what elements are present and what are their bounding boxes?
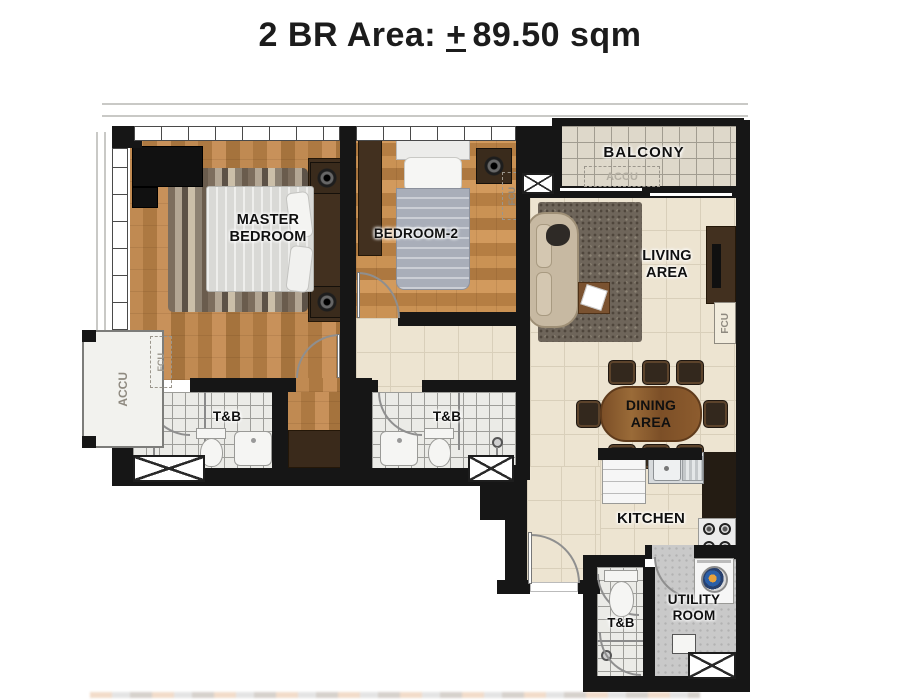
wall — [398, 312, 516, 326]
sink-faucet — [397, 438, 402, 443]
cropped-edge-artifact — [90, 692, 700, 698]
dining-chair — [642, 360, 670, 385]
master-nightstand-lamp — [310, 162, 344, 194]
bedroom2-pillow — [404, 157, 462, 192]
kitchen-counter — [702, 452, 736, 518]
utility-niche — [672, 634, 696, 654]
bedroom2-label: BEDROOM-2 — [360, 226, 472, 242]
dining-chair — [676, 360, 704, 385]
corridor-wardrobe — [288, 430, 342, 468]
slab-line — [104, 132, 106, 338]
fcu-master-box: FCU — [150, 336, 172, 388]
fcu-master-label: FCU — [156, 353, 166, 372]
wall — [82, 436, 96, 448]
slab-line — [102, 115, 748, 117]
sink-faucet — [251, 438, 256, 443]
wall — [497, 580, 530, 594]
tnb-common-label: T&B — [416, 409, 478, 425]
page-title: 2 BR Area:+89.50 sqm — [0, 16, 900, 55]
stove-burner — [703, 523, 715, 535]
accu-ledge-label: ACCU — [116, 372, 130, 407]
bedroom2-window — [356, 126, 516, 141]
wall — [505, 480, 527, 594]
tnb-master-window — [133, 455, 205, 482]
wall — [583, 555, 645, 567]
bedroom2-door-leaf — [357, 272, 360, 318]
wall — [272, 392, 288, 468]
title-area-value: 89.50 sqm — [472, 16, 641, 54]
wall — [82, 330, 96, 342]
washer-drum — [701, 566, 728, 593]
balcony-label: BALCONY — [588, 144, 700, 162]
tnb-service-label: T&B — [596, 615, 646, 630]
title-text: 2 BR Area: — [259, 16, 437, 54]
master-corner-wardrobe — [132, 146, 203, 187]
slab-line — [96, 132, 98, 338]
refrigerator — [602, 458, 646, 504]
sofa-throw-pillow — [546, 224, 570, 246]
entry-threshold — [530, 582, 578, 592]
wall — [422, 380, 516, 392]
accu-balcony-box: ACCU — [584, 166, 660, 187]
slab-line — [102, 103, 748, 105]
utility-room-label: UTILITY ROOM — [648, 592, 740, 624]
master-door-threshold — [296, 378, 340, 392]
dining-chair — [703, 400, 728, 428]
accu-balcony-label: ACCU — [606, 171, 638, 183]
sofa-cushion — [536, 272, 552, 316]
wall — [583, 555, 597, 690]
balcony-wall — [552, 118, 744, 126]
dining-chair — [608, 360, 636, 385]
kitchen-label: KITCHEN — [604, 510, 698, 528]
utility-window — [688, 652, 736, 679]
tnb-master-label: T&B — [198, 409, 256, 425]
wall — [340, 126, 356, 392]
dining-area-label: DINING AREA — [626, 397, 676, 430]
tnb-common-window — [468, 455, 514, 482]
shaft-box — [522, 173, 554, 194]
dining-table: DINING AREA — [600, 386, 702, 442]
entry-door-leaf — [528, 532, 532, 584]
master-window — [134, 126, 340, 141]
floor-plan-page: 2 BR Area:+89.50 sqm FCU FCU — [0, 0, 900, 700]
toilet-bowl — [609, 581, 634, 617]
bathroom-sink — [234, 431, 272, 466]
wall — [694, 545, 736, 559]
master-side-window — [112, 148, 128, 330]
bathroom-sink — [380, 431, 418, 466]
stove-burner — [719, 523, 731, 535]
sink-drain — [664, 466, 669, 471]
washer-panel — [697, 560, 731, 563]
wall — [340, 378, 372, 468]
master-nightstand-lamp — [310, 286, 344, 318]
tv-console — [706, 226, 736, 304]
sliding-door-panel — [650, 193, 732, 196]
sliding-door-panel — [560, 188, 642, 191]
plus-minus-sign: + — [446, 22, 466, 52]
wall — [372, 380, 378, 392]
wall — [598, 448, 702, 460]
living-area-label: LIVING AREA — [626, 248, 708, 282]
wall — [190, 378, 296, 392]
master-corner-wardrobe — [132, 187, 158, 208]
master-bedroom-label: MASTER BEDROOM — [206, 212, 330, 246]
dining-chair — [576, 400, 601, 428]
master-door-leaf — [337, 334, 340, 378]
fcu-living-box: FCU — [714, 302, 736, 344]
tv — [712, 244, 721, 288]
toilet-bowl — [428, 438, 451, 467]
fcu-living-label: FCU — [720, 313, 731, 334]
